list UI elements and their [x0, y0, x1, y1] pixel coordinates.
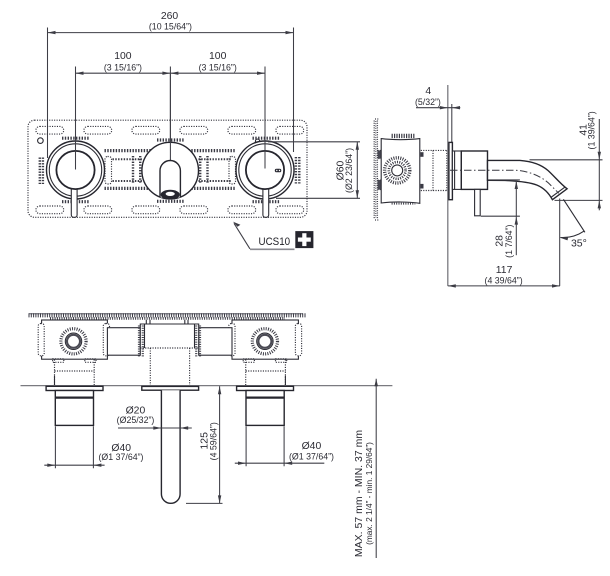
svg-text:100: 100	[114, 51, 132, 62]
svg-text:(Ø2 23/64”): (Ø2 23/64”)	[344, 148, 354, 193]
svg-text:Ø40: Ø40	[302, 441, 322, 452]
svg-text:(4 39/64”): (4 39/64”)	[485, 276, 523, 286]
svg-text:100: 100	[209, 51, 227, 62]
svg-text:MAX. 57 mm - MIN. 37 mm: MAX. 57 mm - MIN. 37 mm	[353, 430, 365, 557]
svg-text:(Ø1 37/64”): (Ø1 37/64”)	[99, 452, 144, 462]
svg-text:(5/32”): (5/32”)	[415, 97, 441, 107]
svg-text:UCS10: UCS10	[259, 236, 291, 248]
svg-text:(Ø1 37/64”): (Ø1 37/64”)	[289, 452, 334, 462]
svg-text:260: 260	[161, 11, 179, 22]
svg-text:(1 39/64”): (1 39/64”)	[587, 111, 597, 149]
svg-text:(3 15/16”): (3 15/16”)	[104, 62, 142, 72]
svg-text:4: 4	[425, 86, 431, 97]
svg-text:(Ø25/32”): (Ø25/32”)	[117, 415, 155, 425]
svg-text:(3 15/16”): (3 15/16”)	[199, 62, 237, 72]
svg-text:(max. 2 1/4” - min. 1 29/64”): (max. 2 1/4” - min. 1 29/64”)	[364, 442, 374, 545]
svg-text:(1 7/64”): (1 7/64”)	[504, 225, 514, 258]
svg-text:(4 59/64”): (4 59/64”)	[208, 422, 218, 460]
svg-text:35°: 35°	[571, 238, 587, 250]
svg-text:(10 15/64”): (10 15/64”)	[149, 22, 192, 32]
svg-text:117: 117	[496, 265, 513, 276]
